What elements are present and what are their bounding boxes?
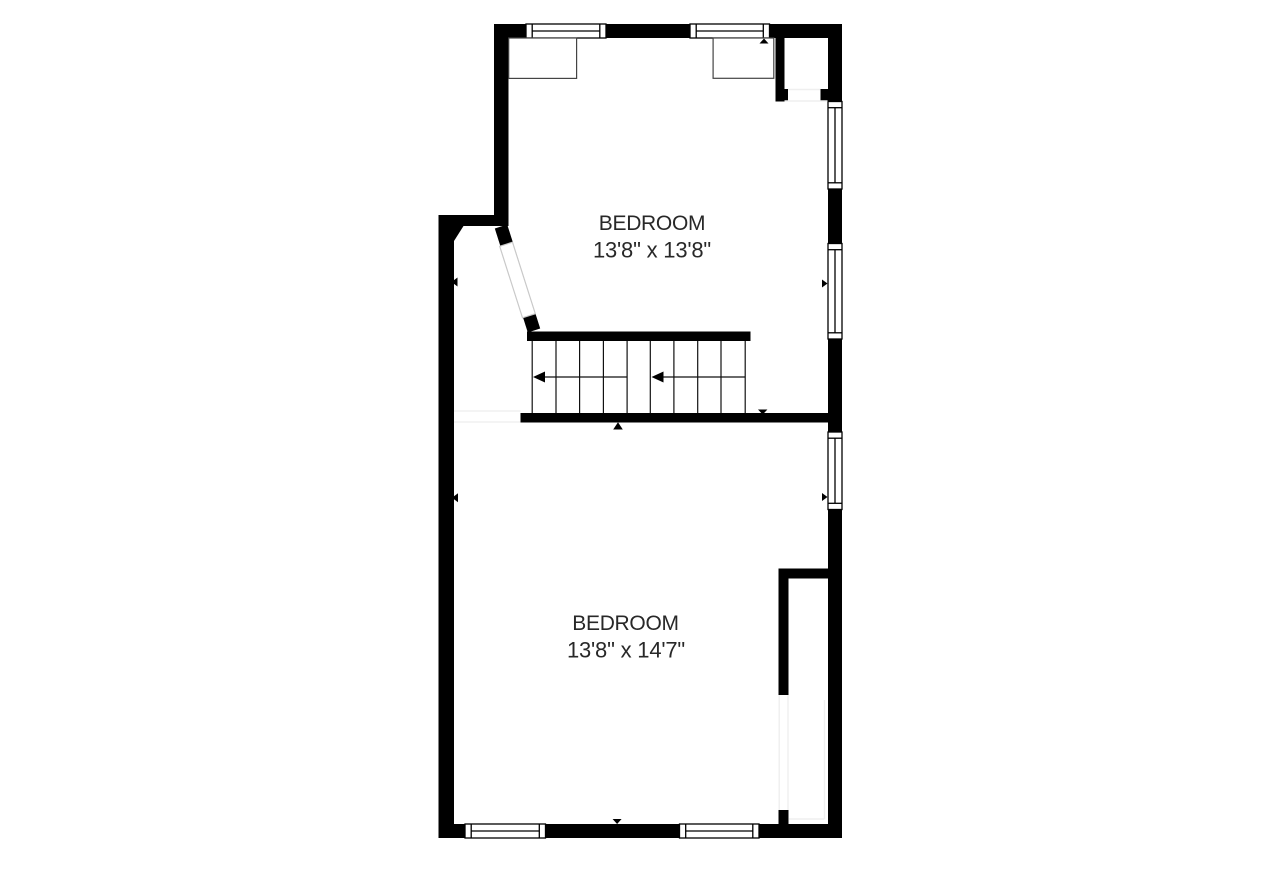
svg-text:BEDROOM: BEDROOM [599,212,705,235]
svg-text:13'8" x 14'7": 13'8" x 14'7" [567,637,685,662]
svg-text:BEDROOM: BEDROOM [572,612,678,635]
svg-text:13'8" x 13'8": 13'8" x 13'8" [593,237,711,262]
